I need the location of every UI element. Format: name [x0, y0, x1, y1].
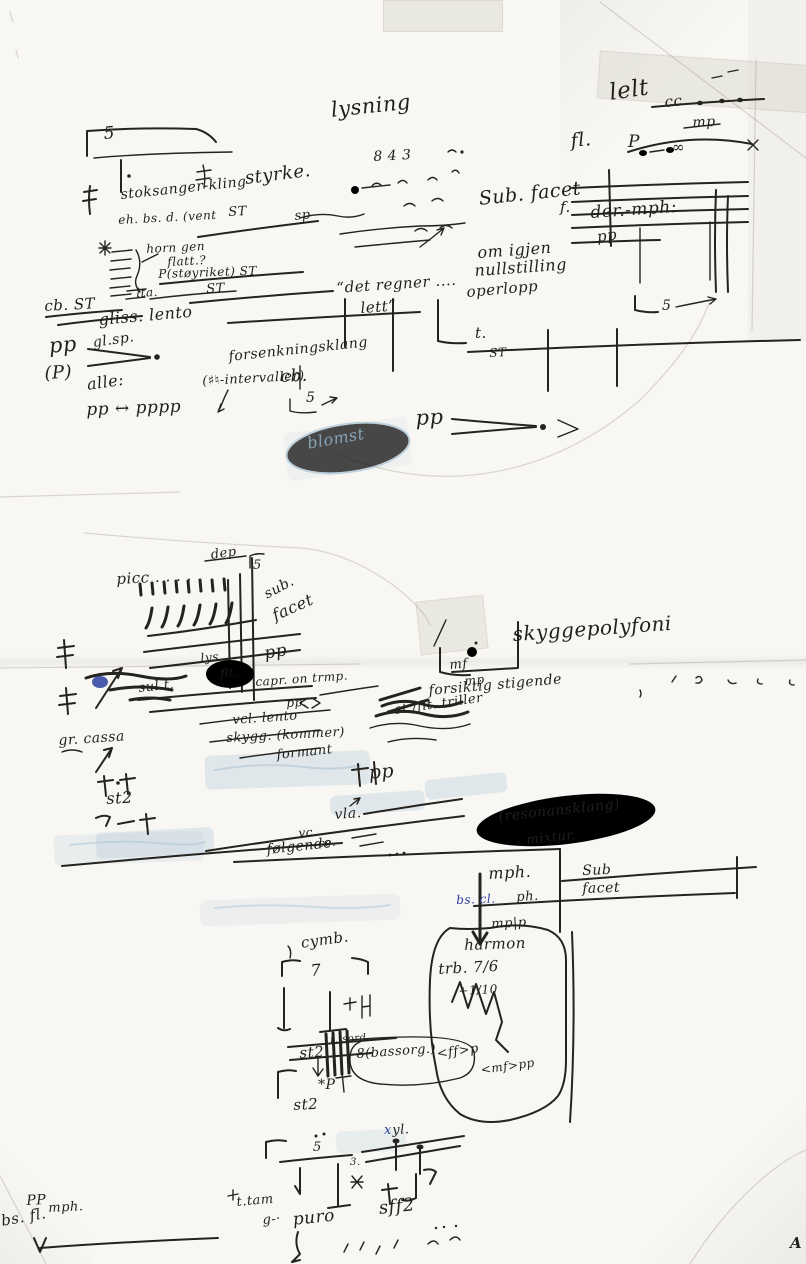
handwriting-vcl-lento: vcl. lento: [232, 709, 298, 727]
handwriting-folgende: følgende: [266, 836, 333, 857]
handwriting-st-2: ST: [206, 282, 225, 296]
handwriting-layer: 5lysningleltccmp∞fl.Pstyrke.8 4 3stoksan…: [0, 0, 806, 1264]
handwriting-mp-top-right: mp: [692, 115, 716, 130]
handwriting-pp-picc: pp: [263, 642, 288, 663]
handwriting-g-dash: g-·: [262, 1212, 281, 1227]
handwriting-cc: cc: [664, 93, 683, 109]
handwriting-corner-mark: A: [790, 1236, 802, 1251]
handwriting-alle: alle:: [86, 372, 125, 393]
handwriting-lett: lett”: [360, 298, 397, 315]
handwriting-numbers-843: 8 4 3: [373, 148, 412, 164]
handwriting-t-tam: t.tam: [236, 1193, 274, 1209]
handwriting-bassorg: 8(bassorg.): [356, 1042, 437, 1061]
handwriting-p-paren: (P): [44, 364, 73, 383]
handwriting-five-top-left: 5: [103, 125, 116, 143]
handwriting-cymb: cymb.: [300, 929, 350, 951]
handwriting-gl-sp: gl.sp.: [92, 330, 135, 350]
handwriting-sff2: sff2: [378, 1196, 416, 1218]
handwriting-plus-110: +1/10: [458, 983, 498, 997]
handwriting-three-bottom: 3.: [350, 1158, 361, 1168]
handwriting-mph-bottom-left: mph.: [48, 1200, 84, 1215]
handwriting-st2-3: st2: [293, 1097, 319, 1113]
handwriting-pp-mid: pp: [415, 407, 444, 429]
handwriting-styrke: styrke.: [244, 162, 312, 188]
handwriting-trb-76: trb. 7/6: [438, 959, 499, 977]
handwriting-mp-p: mp|p: [491, 916, 527, 931]
handwriting-st-3: ST: [489, 346, 507, 359]
handwriting-seven: 7: [310, 962, 322, 979]
handwriting-xyl-x: x: [384, 1124, 392, 1137]
handwriting-star-p: *P: [318, 1078, 335, 1092]
handwriting-pp-mid2: pp: [368, 762, 395, 783]
handwriting-st2-1: st2: [106, 790, 133, 807]
handwriting-fl-top-right: fl.: [570, 130, 592, 151]
handwriting-lysning: lysning: [330, 92, 412, 121]
handwriting-mixtur: mixtur.: [526, 829, 577, 847]
handwriting-flt-circled: flt.: [220, 667, 238, 679]
handwriting-resonansklang: (resonansklang): [498, 797, 621, 824]
handwriting-forsiktig-stigende: forsiktig stigende: [428, 672, 562, 698]
handwriting-five-mid: 5: [306, 391, 315, 405]
handwriting-mf-mid: mf: [449, 657, 468, 672]
handwriting-gliss-lento: gliss. lento: [98, 304, 193, 328]
handwriting-infinity: ∞: [672, 140, 685, 155]
handwriting-pp-left: pp: [48, 334, 78, 357]
handwriting-st-1: ST: [228, 205, 247, 219]
handwriting-ph: ph.: [516, 890, 539, 904]
handwriting-bs-cl: bs. cl.: [456, 893, 496, 906]
handwriting-pp-bottom-left: PP: [26, 1193, 47, 1208]
handwriting-der-mph: der.-mph:: [590, 199, 678, 222]
handwriting-cb-2: cb.: [280, 368, 308, 386]
handwriting-det-regner: “det regner ....: [336, 273, 457, 296]
handwriting-pp-pppp: pp ↔ pppp: [86, 399, 181, 419]
handwriting-t-mid: t.: [475, 326, 487, 341]
handwriting-t-sord: t. sord.: [330, 1033, 370, 1046]
handwriting-ff-p: <ff>p: [436, 1042, 480, 1061]
handwriting-sul-t: sul t.: [138, 678, 175, 695]
handwriting-dep: dep: [210, 545, 237, 561]
scanned-sketch-page: 5: [0, 0, 806, 1264]
handwriting-forsenkningsklang: forsenkningsklang: [228, 335, 368, 364]
handwriting-eh-bs-d-vent: eh. bs. d. (vent: [118, 209, 217, 226]
handwriting-skyggepolyfoni: skyggepolyfoni: [512, 613, 672, 644]
handwriting-bs-fl-bottom: bs. fl.: [0, 1206, 47, 1229]
handwriting-gr-cassa: gr. cassa: [58, 729, 125, 748]
handwriting-p-stoyriket: P(støyriket) ST: [158, 265, 257, 280]
handwriting-mf-pp: <mf>pp: [480, 1056, 535, 1075]
handwriting-operlopp: operlopp: [466, 279, 539, 300]
handwriting-harmon: harmon: [464, 936, 526, 953]
handwriting-p-top-right: P: [628, 134, 640, 151]
handwriting-formant: formant: [276, 743, 333, 762]
handwriting-xyl-yl: yl.: [392, 1123, 410, 1137]
handwriting-vla: vla.: [334, 806, 362, 822]
handwriting-stoksanger-kling: stoksanger-kling: [120, 175, 247, 202]
handwriting-capr-on-trmp: capr. on trmp.: [255, 670, 348, 688]
handwriting-pp-dot: pp.: [286, 696, 307, 709]
handwriting-sp-1: sp: [294, 208, 311, 223]
handwriting-f-top-right: f.: [560, 200, 571, 215]
handwriting-five-picc: 5: [253, 559, 262, 572]
handwriting-blomst: blomst: [306, 426, 366, 452]
handwriting-lelt-top-right: lelt: [608, 76, 650, 104]
handwriting-facet-2: facet: [582, 881, 620, 896]
handwriting-pp-top-right: pp: [596, 227, 618, 245]
handwriting-puro: puro: [292, 1208, 336, 1229]
handwriting-five-bottom: 5: [313, 1141, 322, 1154]
handwriting-cb-st: cb. ST: [44, 296, 96, 314]
handwriting-mph: mph.: [488, 864, 532, 882]
handwriting-sub-2: Sub: [582, 863, 612, 878]
handwriting-lta: lta.: [136, 286, 158, 299]
handwriting-picc: picc . . . .: [116, 568, 192, 587]
handwriting-st2-2: st2: [299, 1045, 325, 1061]
handwriting-nullstilling: nullstilling: [474, 257, 567, 279]
handwriting-lys: lys.: [200, 650, 224, 664]
